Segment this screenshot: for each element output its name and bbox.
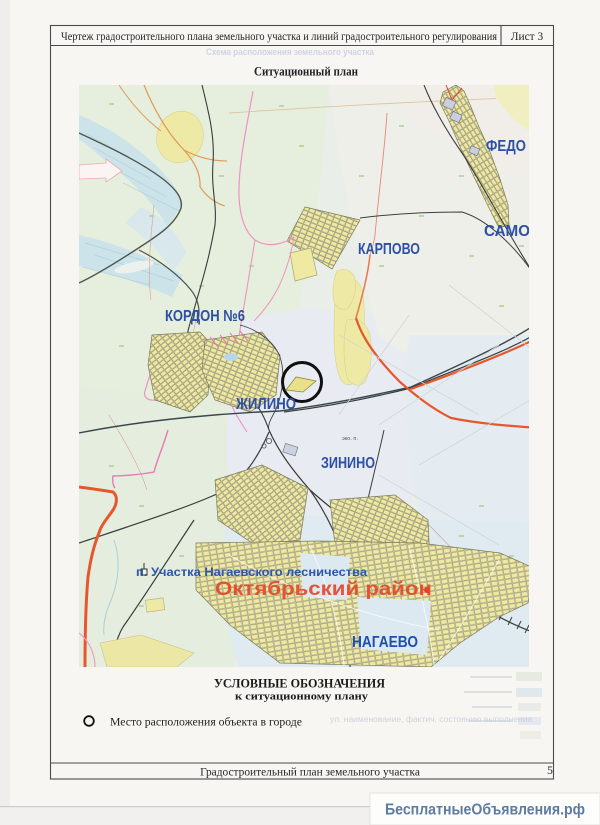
svg-text:ЖИЛИНО: ЖИЛИНО: [235, 396, 296, 413]
svg-text:КОРДОН №6: КОРДОН №6: [165, 308, 245, 325]
svg-text:НАГАЕВО: НАГАЕВО: [352, 634, 418, 651]
svg-text:ул. наименование, фактич. сост: ул. наименование, фактич. состоянию выпо…: [330, 714, 532, 724]
svg-text:к ситуационному плану: к ситуационному плану: [235, 692, 369, 703]
svg-text:Чертеж градостроительного план: Чертеж градостроительного плана земельно…: [61, 31, 498, 43]
svg-text:КАРПОВО: КАРПОВО: [358, 241, 420, 258]
svg-text:УСЛОВНЫЕ ОБОЗНАЧЕНИЯ: УСЛОВНЫЕ ОБОЗНАЧЕНИЯ: [214, 677, 385, 691]
svg-text:Градостроительный план земельн: Градостроительный план земельного участк…: [200, 767, 420, 779]
svg-text:БесплатныеОбъявления.рф: БесплатныеОбъявления.рф: [385, 802, 585, 819]
svg-text:Октябрьский район: Октябрьский район: [215, 579, 432, 600]
svg-text:ЗИНИНО: ЗИНИНО: [321, 455, 375, 472]
svg-text:Ситуационный план: Ситуационный план: [254, 64, 358, 79]
svg-text:Схема расположения земельного: Схема расположения земельного участка: [206, 47, 375, 57]
svg-text:п. Участка Нагаевского лесниче: п. Участка Нагаевского лесничества: [136, 565, 367, 579]
svg-text:САМО: САМО: [484, 223, 530, 240]
svg-text:5: 5: [547, 765, 553, 777]
svg-text:ФЕДО: ФЕДО: [486, 138, 526, 155]
svg-text:эко. п.: эко. п.: [342, 436, 358, 442]
svg-text:Лист 3: Лист 3: [511, 31, 544, 43]
svg-text:Место расположения объекта в г: Место расположения объекта в городе: [110, 717, 302, 729]
